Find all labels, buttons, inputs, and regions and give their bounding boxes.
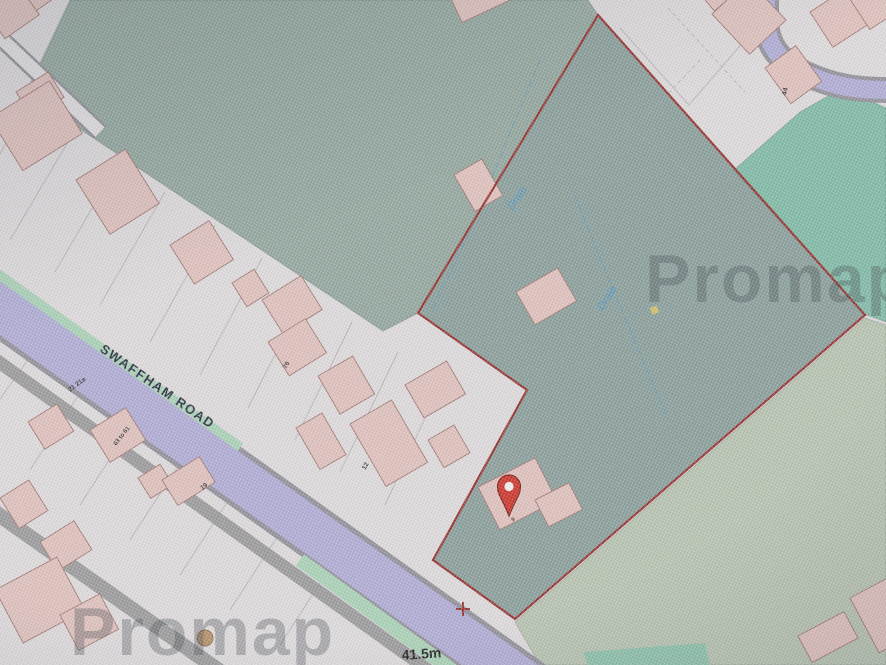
building (428, 425, 470, 468)
promap-watermark: Promap (645, 241, 886, 317)
building (0, 0, 39, 39)
building (170, 221, 233, 284)
map-canvas: SWAFFHAM ROAD Drain Drain 41.5m 21 21a 6… (0, 0, 886, 665)
building (350, 400, 428, 486)
building (318, 356, 375, 414)
map-viewport[interactable]: SWAFFHAM ROAD Drain Drain 41.5m 21 21a 6… (0, 0, 886, 665)
scale-height-label: 41.5m (401, 644, 442, 663)
promap-watermark: Promap (70, 594, 335, 665)
parcel-boundary-line (688, 40, 745, 106)
building (268, 319, 327, 376)
building (405, 361, 466, 418)
house-number: 12 (361, 461, 371, 471)
